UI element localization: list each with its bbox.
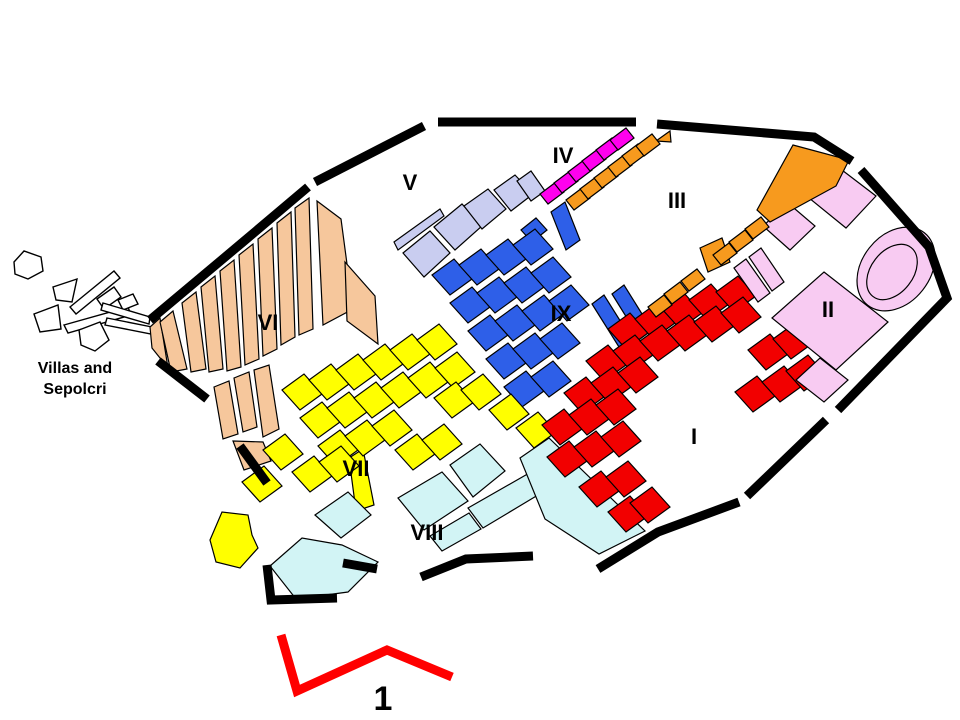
villas-group <box>14 251 152 351</box>
villa-shape <box>34 305 61 332</box>
route-1-label: 1 <box>374 680 393 718</box>
route-1-line <box>281 635 452 691</box>
region-III-block <box>656 131 671 142</box>
region-V-label: V <box>403 170 418 195</box>
region-VI-block <box>254 365 279 437</box>
region-VI-label: VI <box>258 310 279 335</box>
region-VII-block <box>210 512 258 568</box>
city-wall-segment <box>343 563 377 569</box>
region-IV-label: IV <box>553 143 574 168</box>
region-VI-block <box>239 244 259 365</box>
region-III-label: III <box>668 188 686 213</box>
region-VI-block <box>220 260 241 371</box>
region-VIII-block <box>450 444 505 497</box>
region-VI-block <box>295 198 313 335</box>
region-VI-block <box>258 228 277 356</box>
region-VI-block <box>345 262 378 344</box>
region-IX-label: IX <box>551 301 572 326</box>
pompeii-map-slide: VIVIXVIIVIIIIIIIIIIVVillas andSepolcri1 <box>0 0 960 720</box>
region-VIII-label: VIII <box>410 520 443 545</box>
city-wall-segment <box>747 420 826 496</box>
city-wall-segment <box>421 556 533 577</box>
region-VII-block <box>263 434 303 470</box>
villas-sepolcri-label-line2: Sepolcri <box>43 381 106 398</box>
region-I-label: I <box>691 424 697 449</box>
region-VI-block <box>234 372 257 432</box>
region-VI-block <box>214 381 238 439</box>
villa-shape <box>14 251 43 279</box>
region-VI-block <box>277 212 295 345</box>
villa-shape <box>53 279 77 302</box>
villas-sepolcri-label-line1: Villas and <box>38 360 112 377</box>
region-VII-label: VII <box>343 456 370 481</box>
pompeii-regions-map: VIVIXVIIVIIIIIIIIIIVVillas andSepolcri1 <box>0 0 960 720</box>
region-II-label: II <box>822 297 834 322</box>
